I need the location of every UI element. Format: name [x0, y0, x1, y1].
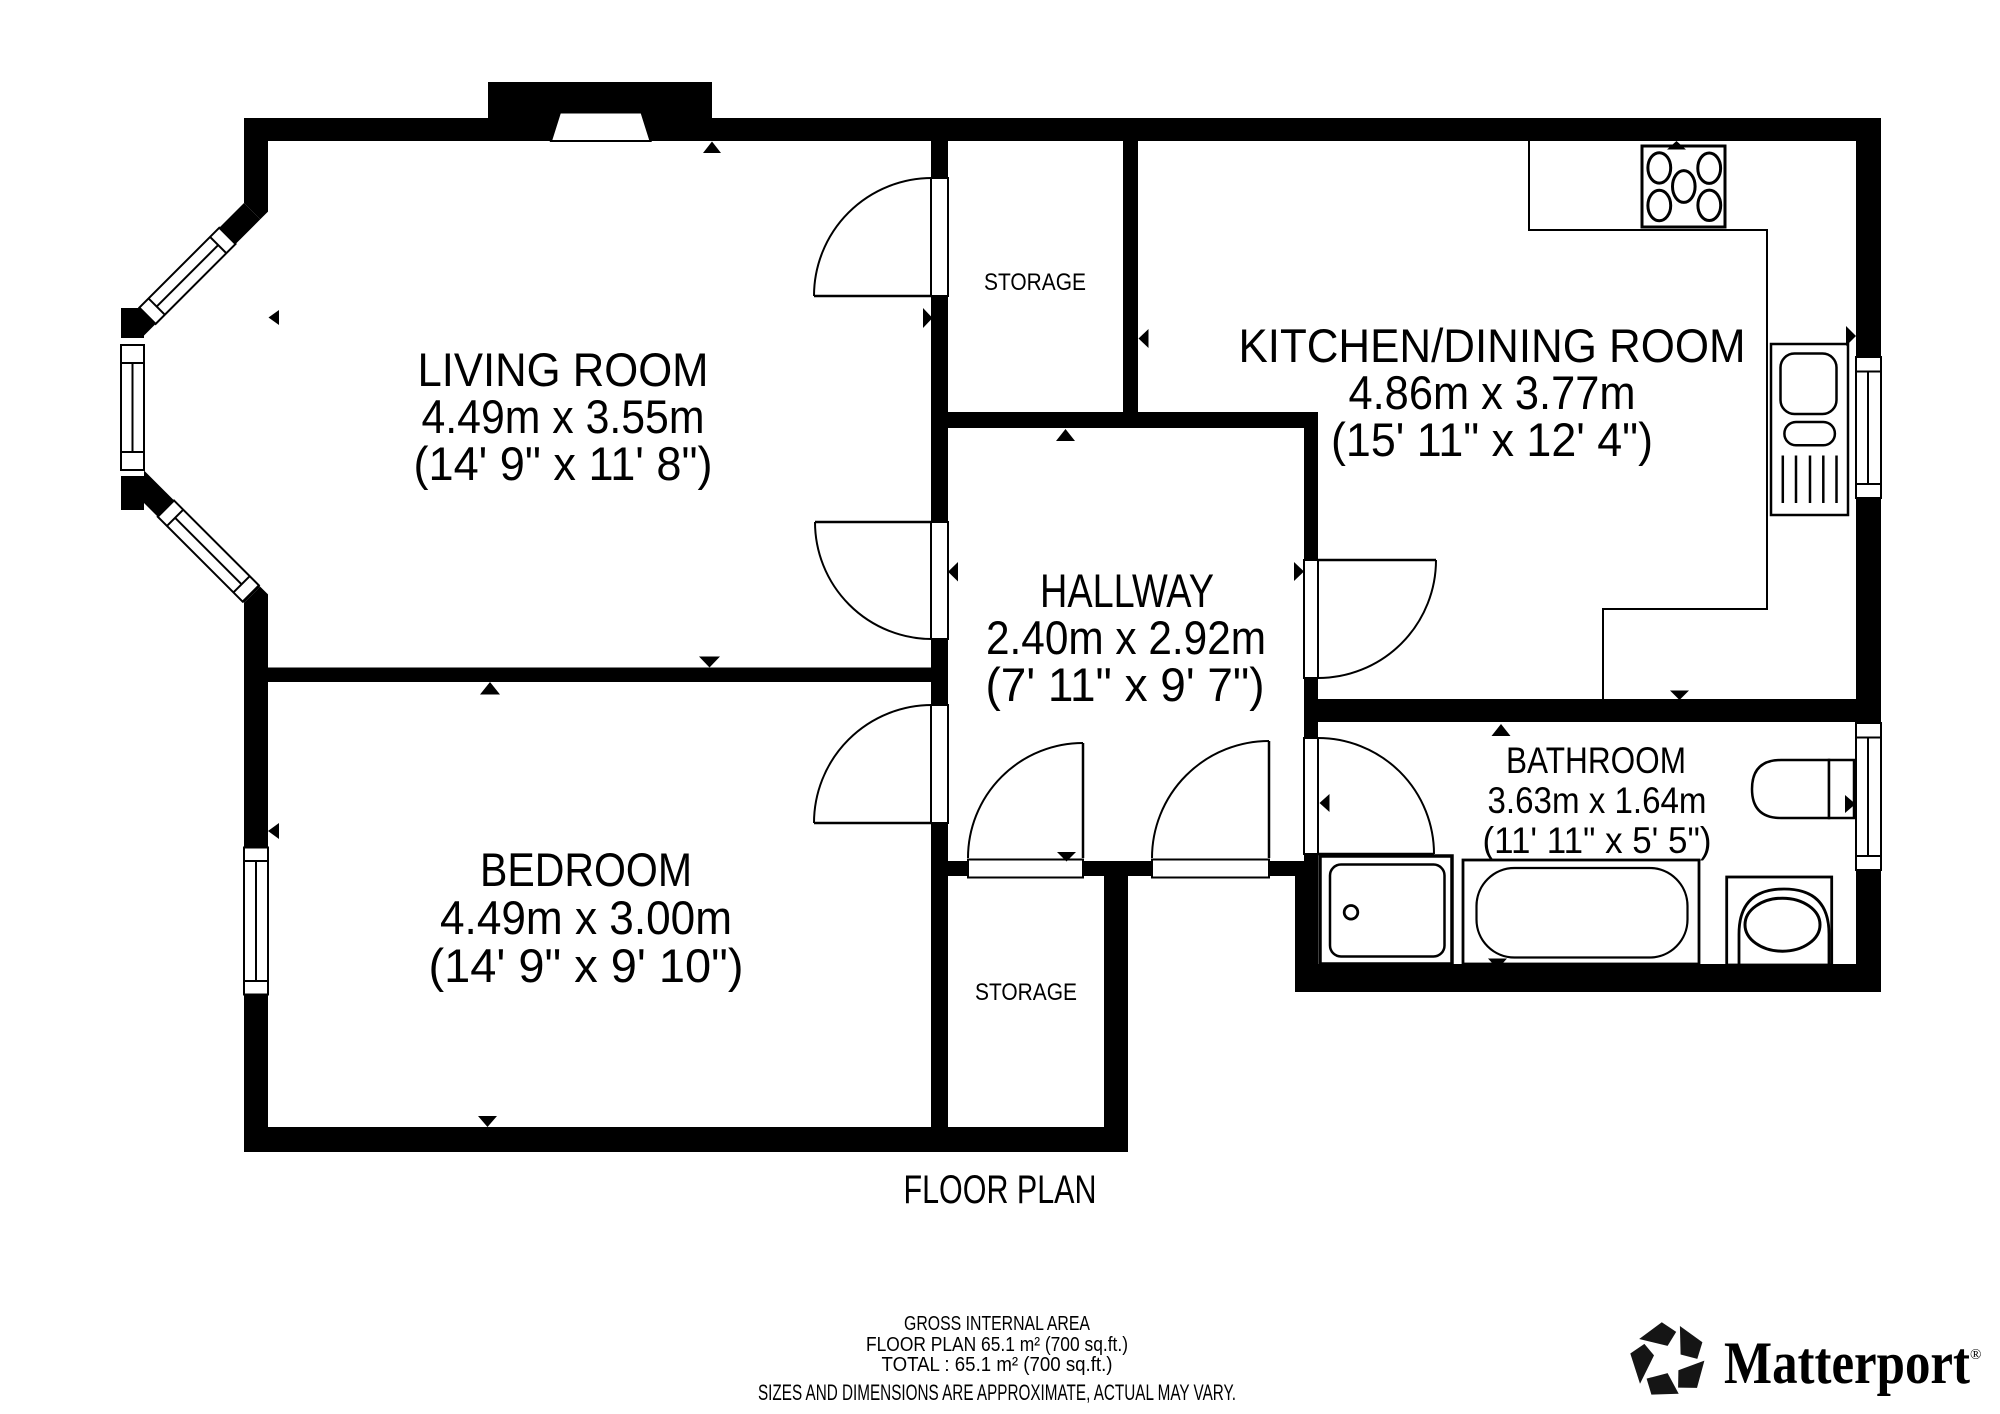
svg-text:4.49m x 3.55m: 4.49m x 3.55m: [422, 390, 705, 443]
svg-text:GROSS INTERNAL AREA: GROSS INTERNAL AREA: [904, 1313, 1091, 1335]
svg-text:(14' 9" x 9' 10"): (14' 9" x 9' 10"): [429, 939, 744, 992]
svg-text:FLOOR PLAN: FLOOR PLAN: [904, 1168, 1097, 1212]
svg-text:(7' 11" x 9' 7"): (7' 11" x 9' 7"): [986, 658, 1265, 711]
svg-text:2.40m x 2.92m: 2.40m x 2.92m: [986, 611, 1266, 664]
svg-text:SIZES AND DIMENSIONS ARE APPRO: SIZES AND DIMENSIONS ARE APPROXIMATE, AC…: [758, 1380, 1236, 1405]
svg-text:TOTAL : 65.1 m² (700 sq.ft.): TOTAL : 65.1 m² (700 sq.ft.): [882, 1354, 1113, 1376]
svg-text:(11' 11" x 5' 5"): (11' 11" x 5' 5"): [1483, 820, 1712, 861]
svg-text:(14' 9" x 11' 8"): (14' 9" x 11' 8"): [414, 437, 713, 490]
svg-text:3.63m x 1.64m: 3.63m x 1.64m: [1488, 780, 1707, 821]
svg-text:4.86m x 3.77m: 4.86m x 3.77m: [1349, 366, 1636, 419]
svg-text:Matterport: Matterport: [1724, 1330, 1970, 1396]
svg-text:LIVING ROOM: LIVING ROOM: [418, 343, 709, 396]
svg-text:(15' 11" x 12' 4"): (15' 11" x 12' 4"): [1331, 413, 1653, 466]
svg-text:HALLWAY: HALLWAY: [1040, 564, 1214, 617]
svg-text:®: ®: [1970, 1347, 1981, 1363]
svg-text:KITCHEN/DINING ROOM: KITCHEN/DINING ROOM: [1239, 319, 1746, 372]
svg-text:STORAGE: STORAGE: [975, 979, 1077, 1006]
svg-text:4.49m x 3.00m: 4.49m x 3.00m: [440, 891, 732, 944]
svg-text:FLOOR PLAN 65.1 m² (700 sq.ft.: FLOOR PLAN 65.1 m² (700 sq.ft.): [866, 1334, 1128, 1356]
svg-text:STORAGE: STORAGE: [984, 269, 1086, 296]
svg-text:BEDROOM: BEDROOM: [480, 843, 692, 896]
svg-text:BATHROOM: BATHROOM: [1506, 740, 1686, 781]
